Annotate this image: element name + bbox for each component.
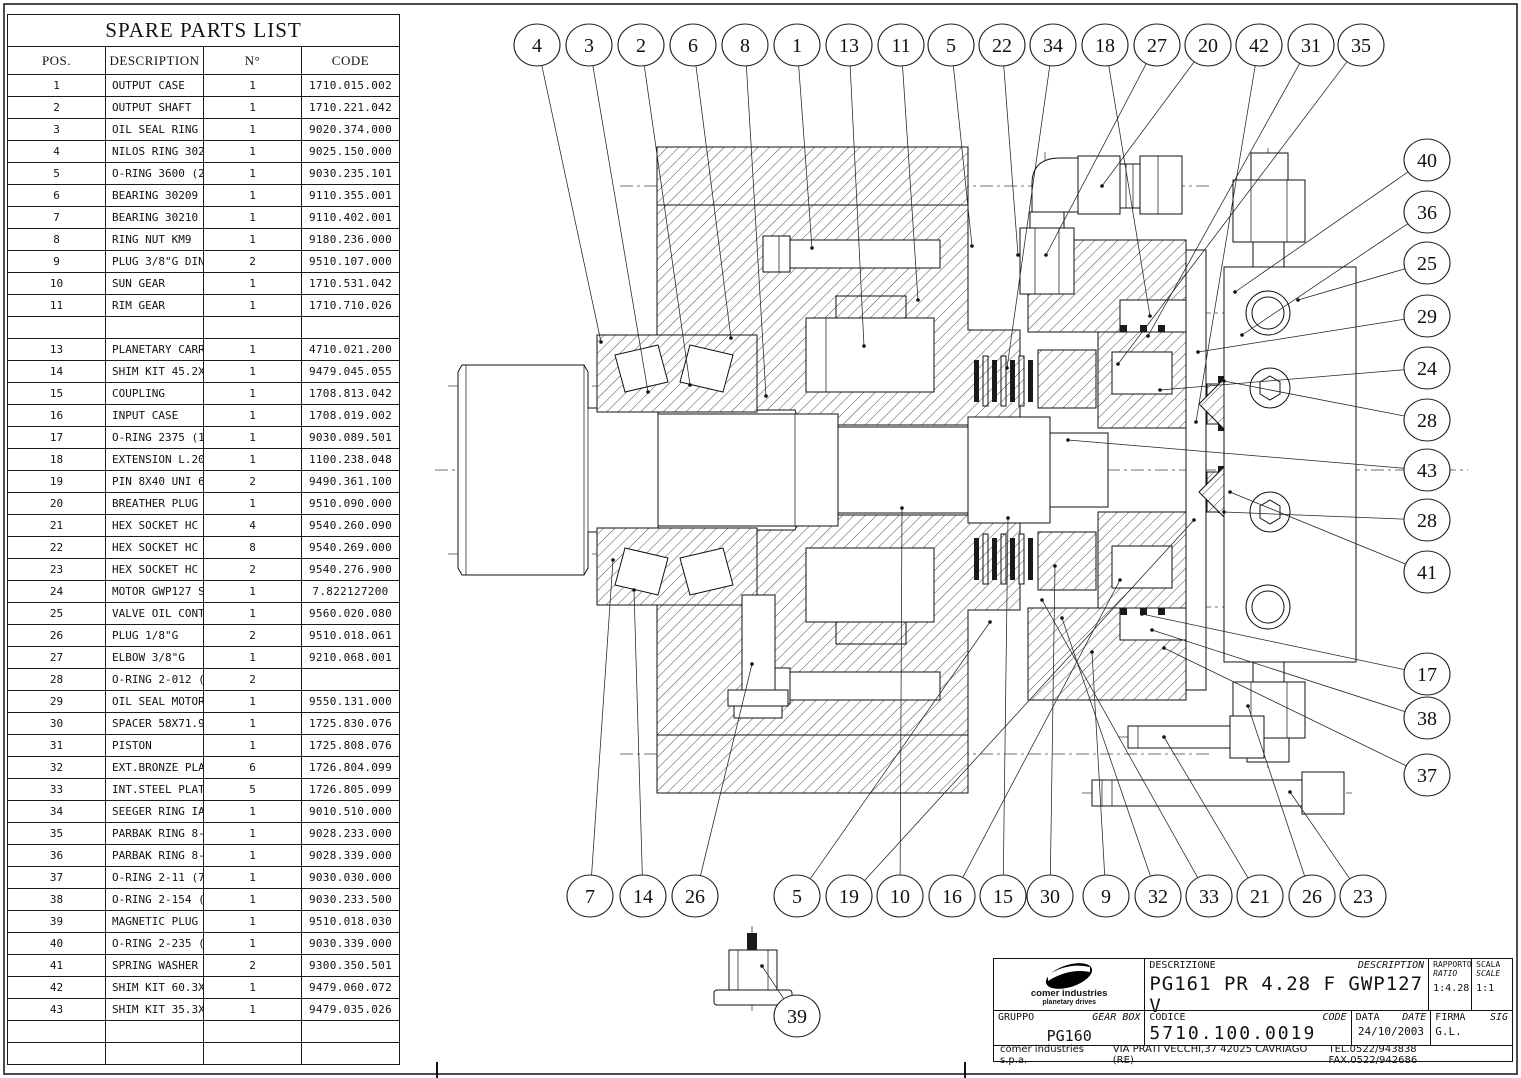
leader-dot [1222, 510, 1226, 514]
balloon-28: 28 [1404, 399, 1450, 441]
table-cell: 1 [204, 207, 302, 229]
table-cell: 1 [204, 449, 302, 471]
footer-address: VIA PRATI VECCHI,37 42025 CAVRIAGO (RE) [1113, 1044, 1329, 1066]
table-cell: COUPLING [106, 383, 204, 405]
table-cell: BREATHER PLUG 3/8"G [106, 493, 204, 515]
table-row: 6BEARING 30209 45X85X20.7519110.355.001 [8, 185, 400, 207]
logo-line1: comer industries [1031, 989, 1108, 999]
table-cell: NILOS RING 30210 AV [106, 141, 204, 163]
leader-dot [1146, 334, 1150, 338]
leader-dot [862, 344, 866, 348]
balloon-13: 13 [826, 24, 872, 66]
table-cell: 15 [8, 383, 106, 405]
svg-text:24: 24 [1417, 358, 1437, 380]
company-logo: comer industries planetary drives [994, 959, 1145, 1011]
balloon-8: 8 [722, 24, 768, 66]
table-row: 22HEX SOCKET HC SCREWS M8X65 UNI59318954… [8, 537, 400, 559]
codice-value: 5710.100.0019 [1149, 1023, 1346, 1044]
table-cell: MAGNETIC PLUG 1/8 [106, 911, 204, 933]
table-cell: 23 [8, 559, 106, 581]
table-cell: 9028.233.000 [302, 823, 400, 845]
balloon-39: 39 [774, 995, 820, 1037]
table-cell: 1726.804.099 [302, 757, 400, 779]
leader-dot [764, 394, 768, 398]
table-row: 16INPUT CASE11708.019.002 [8, 405, 400, 427]
table-cell: 25 [8, 603, 106, 625]
table-cell: 9479.045.055 [302, 361, 400, 383]
balloon-26: 26 [672, 875, 718, 917]
date-value: 24/10/2003 [1356, 1025, 1427, 1038]
date-cell: DATA DATE 24/10/2003 [1352, 1011, 1432, 1046]
balloon-23: 23 [1340, 875, 1386, 917]
table-cell: 1708.019.002 [302, 405, 400, 427]
table-cell: 38 [8, 889, 106, 911]
footer-company: comer industries s.p.a. [1000, 1044, 1113, 1066]
spare-parts-table: SPARE PARTS LIST POS. DESCRIPTION N° COD… [7, 14, 400, 1065]
leader-dot [1100, 184, 1104, 188]
leader-dot [646, 390, 650, 394]
balloon-30: 30 [1027, 875, 1073, 917]
table-cell: 1 [204, 405, 302, 427]
balloon-33: 33 [1186, 875, 1232, 917]
balloon-15: 15 [980, 875, 1026, 917]
svg-text:38: 38 [1417, 708, 1437, 730]
table-row: 20BREATHER PLUG 3/8"G19510.090.000 [8, 493, 400, 515]
table-cell: 1 [204, 889, 302, 911]
table-cell: 27 [8, 647, 106, 669]
svg-text:37: 37 [1417, 765, 1437, 787]
svg-text:2: 2 [636, 35, 646, 57]
table-cell: SPACER 58X71.9X2 [106, 713, 204, 735]
descrizione-label: DESCRIZIONE [1149, 960, 1215, 971]
table-cell: 1 [204, 141, 302, 163]
balloon-35: 35 [1338, 24, 1384, 66]
table-cell: 1 [204, 119, 302, 141]
table-cell: 1 [204, 493, 302, 515]
table-cell: BEARING 30209 45X85X20.75 [106, 185, 204, 207]
svg-text:10: 10 [890, 886, 910, 908]
leader-dot [1296, 298, 1300, 302]
svg-text:5: 5 [792, 886, 802, 908]
table-cell: SHIM KIT 35.3X26.3 [106, 999, 204, 1021]
table-cell: MOTOR GWP127 S.O. [106, 581, 204, 603]
table-cell: SEEGER RING IA 72 UNI 7437 [106, 801, 204, 823]
table-cell: 9510.107.000 [302, 251, 400, 273]
table-cell: 1710.015.002 [302, 75, 400, 97]
table-cell: 1 [204, 295, 302, 317]
data-label: DATA [1356, 1012, 1380, 1023]
table-row: 13PLANETARY CARRYER ASSEMBLED14710.021.2… [8, 339, 400, 361]
table-cell: 1725.830.076 [302, 713, 400, 735]
table-row: 9PLUG 3/8"G DIN 90829510.107.000 [8, 251, 400, 273]
svg-text:15: 15 [993, 886, 1013, 908]
svg-text:41: 41 [1417, 562, 1437, 584]
table-cell: 9030.235.101 [302, 163, 400, 185]
table-cell: EXTENSION L.20 [106, 449, 204, 471]
table-cell: 1 [204, 427, 302, 449]
ratio-cell: RAPPORTO RATIO 1:4.28 [1429, 959, 1472, 1011]
balloon-42: 42 [1236, 24, 1282, 66]
description-label: DESCRIPTION [1358, 960, 1424, 971]
table-cell: OUTPUT SHAFT [106, 97, 204, 119]
table-title: SPARE PARTS LIST [8, 15, 400, 47]
svg-text:34: 34 [1043, 35, 1063, 57]
table-row: 26PLUG 1/8"G29510.018.061 [8, 625, 400, 647]
table-cell: 1 [204, 273, 302, 295]
leader-dot [1118, 578, 1122, 582]
leader-dot [970, 244, 974, 248]
balloon-41: 41 [1404, 551, 1450, 593]
table-cell: 9020.374.000 [302, 119, 400, 141]
table-row: 1OUTPUT CASE11710.015.002 [8, 75, 400, 97]
table-cell [302, 1043, 400, 1065]
table-cell: 1 [204, 845, 302, 867]
table-row: 18EXTENSION L.2011100.238.048 [8, 449, 400, 471]
leader-dot [810, 246, 814, 250]
svg-text:7: 7 [585, 886, 595, 908]
table-cell: 9510.018.061 [302, 625, 400, 647]
leader-dot [1040, 598, 1044, 602]
svg-text:1: 1 [792, 35, 802, 57]
table-row: 31PISTON11725.808.076 [8, 735, 400, 757]
leader-dot [729, 336, 733, 340]
leader-dot [1196, 350, 1200, 354]
table-cell: 1 [204, 933, 302, 955]
balloon-16: 16 [929, 875, 975, 917]
svg-text:19: 19 [839, 886, 859, 908]
balloon-19: 19 [826, 875, 872, 917]
balloon-38: 38 [1404, 697, 1450, 739]
coupling [968, 417, 1050, 523]
leader-dot [1148, 314, 1152, 318]
svg-text:36: 36 [1417, 202, 1437, 224]
table-cell [204, 317, 302, 339]
table-cell: PLUG 1/8"G [106, 625, 204, 647]
rapporto-label: RAPPORTO [1433, 960, 1467, 969]
table-cell: 9010.510.000 [302, 801, 400, 823]
leader-line [542, 66, 601, 342]
table-cell: 11 [8, 295, 106, 317]
table-cell: 9479.060.072 [302, 977, 400, 999]
table-cell: RIM GEAR [106, 295, 204, 317]
table-cell: HEX SOCKET HC SCREWS M8X40 UNI5931 [106, 515, 204, 537]
svg-text:20: 20 [1198, 35, 1218, 57]
svg-text:22: 22 [992, 35, 1012, 57]
table-cell [204, 1021, 302, 1043]
table-cell [8, 1043, 106, 1065]
table-row: 39MAGNETIC PLUG 1/819510.018.030 [8, 911, 400, 933]
date-label: DATE [1402, 1012, 1426, 1023]
table-cell: 2 [204, 471, 302, 493]
table-row: 5O-RING 3600 (2.62X152.7)19030.235.101 [8, 163, 400, 185]
leader-dot [750, 662, 754, 666]
table-row: 7BEARING 30210 50X90X21.7519110.402.001 [8, 207, 400, 229]
balloon-1: 1 [774, 24, 820, 66]
table-cell: 6 [204, 757, 302, 779]
svg-text:6: 6 [688, 35, 698, 57]
table-cell: 1 [204, 823, 302, 845]
table-cell: O-RING 3600 (2.62X152.7) [106, 163, 204, 185]
table-cell: VALVE OIL CONTROL [106, 603, 204, 625]
table-row: 2OUTPUT SHAFT11710.221.042 [8, 97, 400, 119]
signature-value: G.L. [1435, 1025, 1508, 1038]
logo-line2: planetary drives [1042, 999, 1096, 1007]
elbow-fitting [1032, 158, 1078, 212]
svg-text:28: 28 [1417, 510, 1437, 532]
table-row: 42SHIM KIT 60.3X71.719479.060.072 [8, 977, 400, 999]
table-cell: 8 [8, 229, 106, 251]
leader-dot [1044, 253, 1048, 257]
leader-dot [1192, 518, 1196, 522]
table-cell: 9510.018.030 [302, 911, 400, 933]
table-cell: 9490.361.100 [302, 471, 400, 493]
balloon-3: 3 [566, 24, 612, 66]
table-cell: 1710.710.026 [302, 295, 400, 317]
table-cell: 1 [204, 911, 302, 933]
leader-dot [1158, 388, 1162, 392]
table-cell: 17 [8, 427, 106, 449]
table-cell: O-RING 2-11 (7.65X1.78) [106, 867, 204, 889]
table-cell: 2 [8, 97, 106, 119]
table-row: 14SHIM KIT 45.2X54.219479.045.055 [8, 361, 400, 383]
balloon-2: 2 [618, 24, 664, 66]
table-cell: 34 [8, 801, 106, 823]
table-cell: 6 [8, 185, 106, 207]
balloon-11: 11 [878, 24, 924, 66]
table-row: 28O-RING 2-012 (1.78X9.25) 90 SHORE2 [8, 669, 400, 691]
table-cell: INT.STEEL PLATE [106, 779, 204, 801]
codice-label: CODICE [1149, 1012, 1185, 1023]
balloon-20: 20 [1185, 24, 1231, 66]
table-row: 32EXT.BRONZE PLATE61726.804.099 [8, 757, 400, 779]
table-cell: 21 [8, 515, 106, 537]
svg-text:39: 39 [787, 1006, 807, 1028]
table-cell: 1 [204, 713, 302, 735]
table-cell: 9110.402.001 [302, 207, 400, 229]
balloon-25: 25 [1404, 242, 1450, 284]
balloon-32: 32 [1135, 875, 1181, 917]
table-cell: 7.822127200 [302, 581, 400, 603]
table-cell: OIL SEAL MOTOR'S KIT [106, 691, 204, 713]
leader-dot [1060, 616, 1064, 620]
svg-text:43: 43 [1417, 460, 1437, 482]
table-cell [106, 1021, 204, 1043]
table-row: 29OIL SEAL MOTOR'S KIT19550.131.000 [8, 691, 400, 713]
table-cell: 1710.531.042 [302, 273, 400, 295]
leader-line [592, 560, 613, 875]
table-row: 4NILOS RING 30210 AV19025.150.000 [8, 141, 400, 163]
table-cell [302, 1021, 400, 1043]
table-cell: 31 [8, 735, 106, 757]
svg-text:13: 13 [839, 35, 859, 57]
table-cell: INPUT CASE [106, 405, 204, 427]
firma-label: FIRMA [1435, 1012, 1465, 1023]
table-cell: 1 [204, 977, 302, 999]
parts-table-body: 1OUTPUT CASE11710.015.0022OUTPUT SHAFT11… [8, 75, 400, 1065]
svg-text:27: 27 [1147, 35, 1167, 57]
leader-dot [1150, 628, 1154, 632]
table-cell: PARBAK RING 8-235 [106, 845, 204, 867]
table-cell: 26 [8, 625, 106, 647]
table-cell: 9 [8, 251, 106, 273]
scale-label: SCALE [1476, 969, 1508, 978]
table-row: 15COUPLING11708.813.042 [8, 383, 400, 405]
table-cell: 37 [8, 867, 106, 889]
table-cell: 1 [204, 75, 302, 97]
socket-screw [1128, 726, 1230, 748]
svg-text:17: 17 [1417, 664, 1437, 686]
balloon-7: 7 [567, 875, 613, 917]
title-block-footer: comer industries s.p.a. VIA PRATI VECCHI… [994, 1046, 1512, 1063]
case-plug [742, 595, 775, 690]
balloon-31: 31 [1288, 24, 1334, 66]
table-row: 11RIM GEAR11710.710.026 [8, 295, 400, 317]
table-cell: 1708.813.042 [302, 383, 400, 405]
table-cell: 9540.276.900 [302, 559, 400, 581]
table-cell: 9030.030.000 [302, 867, 400, 889]
table-cell: 32 [8, 757, 106, 779]
planet-gear [806, 318, 934, 392]
balloon-43: 43 [1404, 449, 1450, 491]
table-cell: 18 [8, 449, 106, 471]
balloon-22: 22 [979, 24, 1025, 66]
table-cell: 1 [204, 185, 302, 207]
balloon-5: 5 [928, 24, 974, 66]
table-cell: 1 [204, 581, 302, 603]
svg-text:21: 21 [1250, 886, 1270, 908]
svg-text:32: 32 [1148, 886, 1168, 908]
table-cell: 22 [8, 537, 106, 559]
table-row: 38O-RING 2-154 (2.62X94.92)19030.233.500 [8, 889, 400, 911]
balloon-36: 36 [1404, 191, 1450, 233]
table-cell: 1 [204, 339, 302, 361]
table-cell: SHIM KIT 60.3X71.7 [106, 977, 204, 999]
table-cell: 9030.233.500 [302, 889, 400, 911]
balloon-10: 10 [877, 875, 923, 917]
table-cell: SHIM KIT 45.2X54.2 [106, 361, 204, 383]
table-row: 17O-RING 2375 (1.78X94.97)19030.089.501 [8, 427, 400, 449]
table-cell: 4 [204, 515, 302, 537]
table-cell: 40 [8, 933, 106, 955]
table-cell: 1 [204, 691, 302, 713]
table-cell [8, 317, 106, 339]
table-cell: PLANETARY CARRYER ASSEMBLED [106, 339, 204, 361]
table-cell: ELBOW 3/8"G [106, 647, 204, 669]
table-row: 25VALVE OIL CONTROL19560.020.080 [8, 603, 400, 625]
table-cell: 29 [8, 691, 106, 713]
table-cell: O-RING 2-012 (1.78X9.25) 90 SHORE [106, 669, 204, 691]
svg-text:16: 16 [942, 886, 962, 908]
svg-text:30: 30 [1040, 886, 1060, 908]
table-cell: 2 [204, 669, 302, 691]
table-cell: 9030.089.501 [302, 427, 400, 449]
balloon-14: 14 [620, 875, 666, 917]
svg-text:35: 35 [1351, 35, 1371, 57]
leader-line [1004, 66, 1018, 255]
table-row [8, 1021, 400, 1043]
svg-text:33: 33 [1199, 886, 1219, 908]
balloon-40: 40 [1404, 139, 1450, 181]
table-row: 43SHIM KIT 35.3X26.319479.035.026 [8, 999, 400, 1021]
title-block: comer industries planetary drives DESCRI… [993, 958, 1513, 1062]
footer-phone: TEL.0522/943838 FAX.0522/942686 [1329, 1044, 1507, 1066]
scale-cell: SCALA SCALE 1:1 [1472, 959, 1512, 1011]
table-cell: 9030.339.000 [302, 933, 400, 955]
table-cell [106, 317, 204, 339]
svg-text:9: 9 [1101, 886, 1111, 908]
code-label: CODE [1323, 1012, 1347, 1023]
sun-gear [838, 427, 968, 513]
table-cell [106, 1043, 204, 1065]
drawing-sheet: { "table": { "title": "SPARE PARTS LIST"… [0, 0, 1521, 1078]
table-cell: 1 [204, 97, 302, 119]
table-cell: 41 [8, 955, 106, 977]
table-row: 35PARBAK RING 8-15419028.233.000 [8, 823, 400, 845]
balloon-17: 17 [1404, 653, 1450, 695]
table-row: 41SPRING WASHER 71X36X229300.350.501 [8, 955, 400, 977]
leader-dot [599, 340, 603, 344]
table-row: 19PIN 8X40 UNI 687529490.361.100 [8, 471, 400, 493]
table-row: 40O-RING 2-235 (3.53X78.97)19030.339.000 [8, 933, 400, 955]
table-row: 23HEX SOCKET HC SCREWS M8X80 UNI59312954… [8, 559, 400, 581]
leader-dot [1222, 379, 1226, 383]
table-cell: 35 [8, 823, 106, 845]
balloon-24: 24 [1404, 347, 1450, 389]
table-cell: 2 [204, 955, 302, 977]
table-cell: 9479.035.026 [302, 999, 400, 1021]
table-cell: 9025.150.000 [302, 141, 400, 163]
table-cell: 9300.350.501 [302, 955, 400, 977]
svg-text:26: 26 [685, 886, 705, 908]
leader-dot [1194, 420, 1198, 424]
table-row [8, 317, 400, 339]
table-cell: 1 [204, 647, 302, 669]
table-row: 8RING NUT KM919180.236.000 [8, 229, 400, 251]
table-cell: 1725.808.076 [302, 735, 400, 757]
table-cell: 9510.090.000 [302, 493, 400, 515]
table-cell: 3 [8, 119, 106, 141]
svg-text:8: 8 [740, 35, 750, 57]
table-cell: 10 [8, 273, 106, 295]
table-cell: 9540.269.000 [302, 537, 400, 559]
scala-label: SCALA [1476, 960, 1508, 969]
leader-dot [988, 620, 992, 624]
svg-text:11: 11 [891, 35, 910, 57]
table-cell: 39 [8, 911, 106, 933]
balloon-6: 6 [670, 24, 716, 66]
svg-text:18: 18 [1095, 35, 1115, 57]
leader-dot [611, 558, 615, 562]
leader-dot [760, 964, 764, 968]
table-cell: 1 [204, 163, 302, 185]
table-cell: 1 [204, 603, 302, 625]
code-cell: CODICE CODE 5710.100.0019 [1145, 1011, 1351, 1046]
table-cell: 5 [8, 163, 106, 185]
table-cell: RING NUT KM9 [106, 229, 204, 251]
table-cell: O-RING 2-235 (3.53X78.97) [106, 933, 204, 955]
table-cell: 9550.131.000 [302, 691, 400, 713]
table-row: 27ELBOW 3/8"G19210.068.001 [8, 647, 400, 669]
sig-label: SIG [1490, 1012, 1508, 1023]
output-case-flange [657, 147, 968, 205]
svg-text:25: 25 [1417, 253, 1437, 275]
table-cell [302, 669, 400, 691]
leader-dot [1090, 650, 1094, 654]
table-cell: 1 [204, 361, 302, 383]
table-cell: 36 [8, 845, 106, 867]
balloon-21: 21 [1237, 875, 1283, 917]
scale-value: 1:1 [1476, 983, 1508, 994]
